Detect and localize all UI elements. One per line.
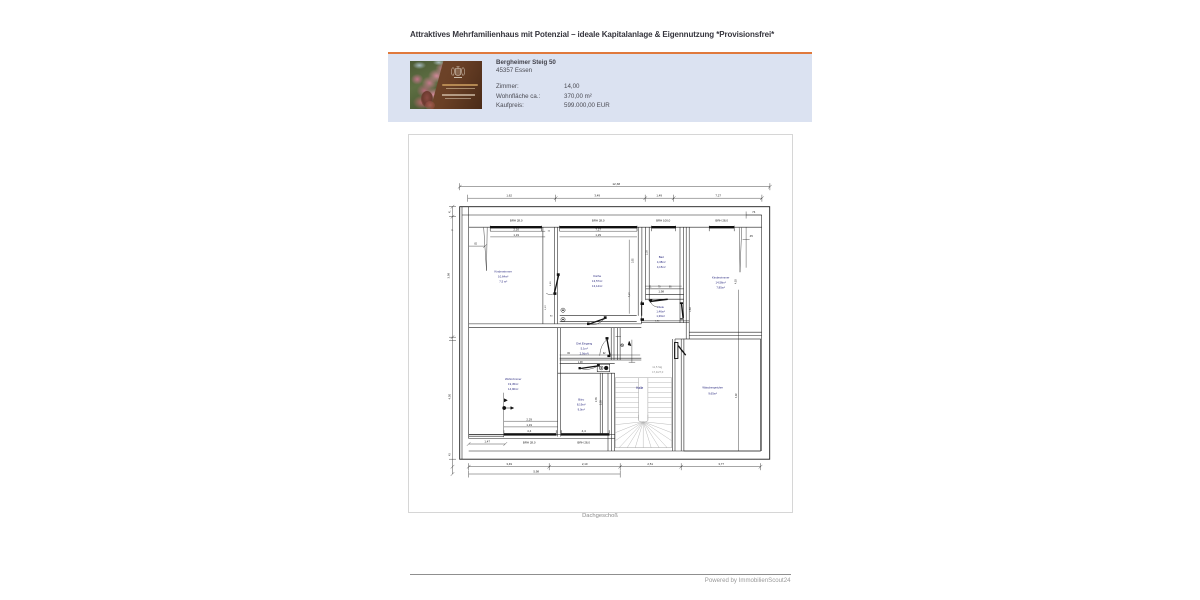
svg-text:7,27: 7,27 (715, 194, 721, 198)
svg-text:Wäschespeicher: Wäschespeicher (702, 386, 723, 390)
svg-text:BRH 28,0: BRH 28,0 (592, 219, 605, 223)
svg-text:Wohnzimmer: Wohnzimmer (505, 377, 521, 381)
svg-text:4,50: 4,50 (734, 279, 737, 284)
svg-text:4,14: 4,14 (628, 292, 631, 297)
svg-text:3,77: 3,77 (718, 462, 724, 466)
svg-text:13,57m²: 13,57m² (592, 279, 602, 283)
svg-text:BRH 100,0: BRH 100,0 (656, 219, 671, 223)
svg-text:2,51: 2,51 (647, 462, 653, 466)
svg-text:4,38m²: 4,38m² (657, 260, 666, 264)
svg-text:3,49: 3,49 (506, 462, 512, 466)
svg-text:4,4: 4,4 (527, 429, 531, 433)
svg-text:1,08: 1,08 (578, 361, 583, 364)
svg-text:1,19: 1,19 (513, 233, 519, 237)
svg-text:9,0m²: 9,0m² (577, 408, 584, 412)
svg-text:45: 45 (749, 234, 753, 238)
svg-text:BRH 28,0: BRH 28,0 (510, 219, 523, 223)
svg-text:80: 80 (550, 316, 553, 318)
svg-text:2,16: 2,16 (513, 228, 519, 232)
svg-text:1,36m²: 1,36m² (656, 314, 665, 318)
svg-text:2,9(m²): 2,9(m²) (579, 352, 588, 356)
svg-text:Diele: Diele (657, 305, 664, 309)
svg-text:2,00: 2,00 (645, 250, 648, 255)
svg-text:82: 82 (474, 243, 477, 246)
svg-text:3,49: 3,49 (594, 194, 600, 198)
svg-text:3,92: 3,92 (631, 258, 634, 263)
svg-text:BRH 28,0: BRH 28,0 (715, 219, 728, 223)
svg-text:Bad: Bad (659, 255, 664, 259)
svg-text:7,85m²: 7,85m² (716, 286, 725, 290)
svg-text:8,19m²: 8,19m² (577, 403, 586, 407)
svg-text:1,47: 1,47 (484, 440, 490, 444)
svg-text:BRH 28,0: BRH 28,0 (577, 441, 590, 445)
svg-text:74: 74 (752, 210, 756, 214)
svg-text:5,1m²: 5,1m² (580, 347, 587, 351)
svg-text:1,98: 1,98 (658, 290, 664, 294)
svg-text:3,98: 3,98 (446, 273, 450, 279)
svg-text:71: 71 (451, 230, 454, 232)
svg-text:1,19: 1,19 (526, 423, 532, 427)
svg-text:Kinderzimmer: Kinderzimmer (494, 270, 511, 274)
svg-text:4,15m²: 4,15m² (657, 265, 666, 269)
svg-text:14,56m²: 14,56m² (715, 281, 725, 285)
svg-text:82: 82 (567, 352, 570, 355)
svg-text:BRH 28,0: BRH 28,0 (523, 441, 536, 445)
svg-text:1,29: 1,29 (595, 233, 601, 237)
svg-text:17,4/27,0: 17,4/27,0 (652, 370, 664, 374)
svg-text:12,38: 12,38 (612, 182, 620, 186)
svg-text:1,60: 1,60 (689, 307, 692, 312)
svg-text:1,62: 1,62 (506, 194, 512, 198)
svg-text:2,00: 2,00 (599, 400, 602, 405)
svg-text:1,49: 1,49 (656, 194, 662, 198)
svg-text:40: 40 (448, 453, 451, 456)
svg-text:16: 16 (547, 231, 550, 233)
svg-text:2,35: 2,35 (595, 397, 598, 402)
svg-text:Halle: Halle (636, 386, 643, 390)
svg-text:4,50: 4,50 (447, 394, 451, 400)
svg-text:5,98: 5,98 (533, 470, 539, 474)
svg-text:2,29: 2,29 (526, 418, 532, 422)
svg-text:19,45m²: 19,45m² (508, 382, 518, 386)
svg-text:Küche: Küche (593, 274, 601, 278)
svg-text:1,60: 1,60 (550, 281, 552, 286)
svg-text:41: 41 (448, 210, 451, 213)
svg-text:Kinderzimmer: Kinderzimmer (712, 276, 729, 280)
svg-text:Diel.Eingang: Diel.Eingang (576, 342, 592, 346)
svg-text:2,10: 2,10 (582, 462, 588, 466)
svg-text:13,14m²: 13,14m² (592, 284, 602, 288)
svg-text:10,64m²: 10,64m² (498, 275, 508, 279)
svg-text:1,13: 1,13 (545, 305, 547, 310)
svg-text:14,90m²: 14,90m² (508, 387, 518, 391)
svg-text:4,4: 4,4 (581, 429, 585, 433)
svg-text:92: 92 (603, 352, 606, 355)
svg-text:9,65m²: 9,65m² (708, 392, 717, 396)
svg-text:Büro: Büro (578, 398, 584, 402)
svg-text:1,46m²: 1,46m² (656, 310, 665, 314)
svg-text:7,27: 7,27 (595, 228, 601, 232)
svg-text:7,5 m²: 7,5 m² (499, 280, 507, 284)
svg-text:4,92: 4,92 (735, 393, 738, 398)
svg-text:11,5 Stg: 11,5 Stg (652, 365, 662, 369)
